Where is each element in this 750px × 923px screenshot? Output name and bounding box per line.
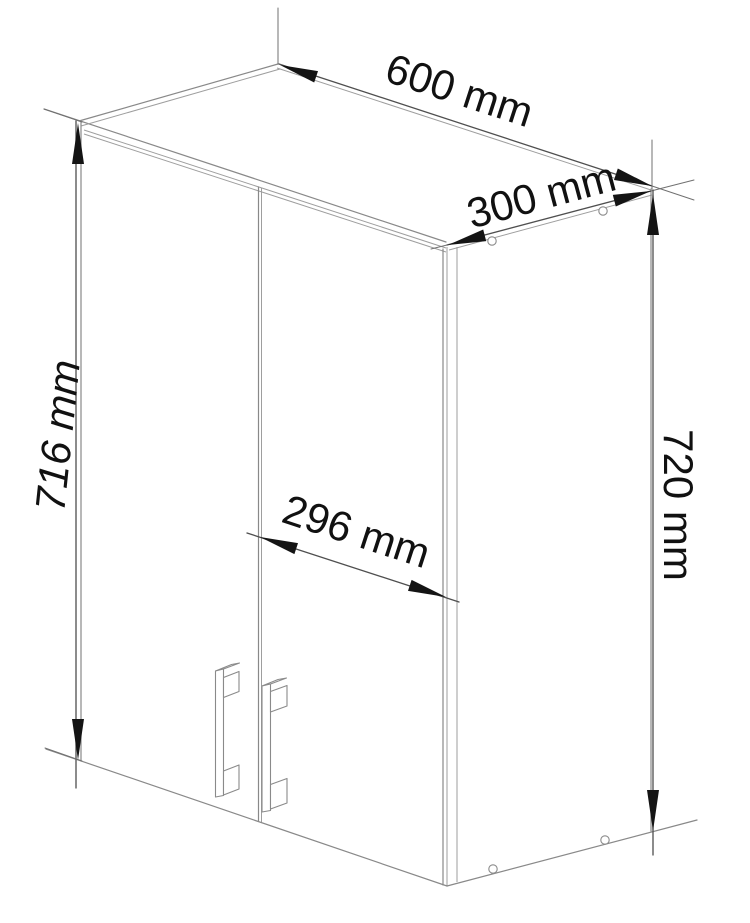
- handle-left-door: [216, 663, 240, 797]
- handle-left-bottom-mount: [224, 765, 240, 795]
- dim-side-height-720: 720 mm: [647, 190, 702, 855]
- dim-door-width-label: 296 mm: [277, 485, 436, 577]
- door-top-gap-line-2: [84, 134, 446, 252]
- dim-front-height-arrow-bottom: [72, 719, 84, 760]
- dim-front-height-716: 716 mm: [26, 109, 89, 788]
- front-face: [46, 121, 447, 886]
- door-divider: [259, 187, 262, 822]
- drawing-canvas: 600 mm 300 mm 716 mm 296 mm 720 mm: [0, 0, 750, 923]
- dim-front-height-tick-top: [44, 109, 82, 122]
- dim-side-height-label: 720 mm: [655, 429, 702, 581]
- dim-depth-overshoot-right: [651, 180, 694, 191]
- top-face: [44, 64, 652, 250]
- screw-hole-bottom-front: [489, 865, 497, 873]
- dim-width-600: 600 mm: [278, 8, 694, 200]
- side-bottom-edge: [447, 820, 697, 886]
- dim-side-height-arrow-bottom: [647, 790, 659, 831]
- screw-hole-top-front: [488, 237, 496, 245]
- dim-front-height-label: 716 mm: [26, 358, 89, 514]
- screw-hole-top-back: [599, 207, 607, 215]
- screw-hole-bottom-back: [601, 836, 609, 844]
- left-top-edge: [79, 64, 278, 121]
- dim-width-overshoot: [652, 186, 694, 200]
- handle-left-bar: [216, 669, 224, 797]
- handle-left-top-mount: [224, 672, 240, 698]
- dim-door-width-296: 296 mm: [247, 485, 459, 602]
- dim-width-arrow-left: [280, 65, 318, 83]
- left-top-inner-line: [81, 69, 280, 126]
- dim-side-height-arrow-top: [647, 194, 659, 235]
- handle-right-top-mount: [271, 686, 288, 713]
- door-top-gap-line-1: [84, 130, 446, 248]
- front-top-edge: [44, 109, 446, 242]
- handle-right-bottom-mount: [271, 779, 288, 810]
- dim-width-label: 600 mm: [380, 44, 539, 136]
- handle-right-door: [262, 678, 287, 812]
- handle-right-bar: [262, 684, 271, 812]
- dim-front-height-arrow-top: [72, 123, 84, 164]
- cabinet-dimension-drawing: 600 mm 300 mm 716 mm 296 mm 720 mm: [0, 0, 750, 923]
- dim-width-arrow-right: [614, 169, 652, 187]
- bottom-front-edge: [46, 749, 447, 886]
- dim-door-width-arrow-right: [408, 580, 446, 597]
- dim-door-width-arrow-left: [260, 537, 298, 554]
